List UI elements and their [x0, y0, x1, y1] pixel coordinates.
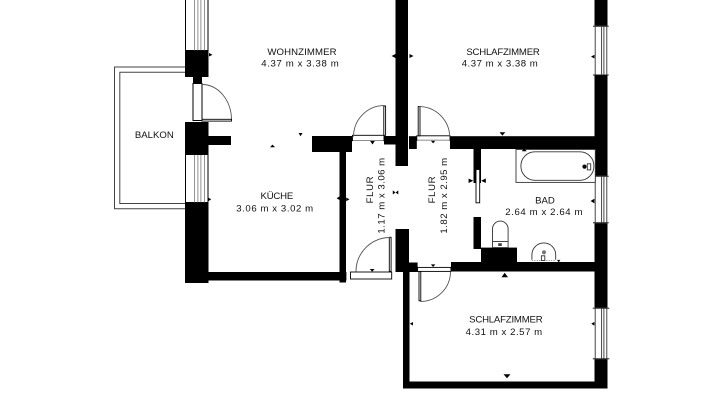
- svg-text:KÜCHE: KÜCHE: [261, 191, 294, 202]
- svg-text:BALKON: BALKON: [135, 130, 174, 141]
- svg-text:1.82 m x 2.95 m: 1.82 m x 2.95 m: [439, 157, 450, 233]
- svg-text:4.37 m x 3.38 m: 4.37 m x 3.38 m: [261, 58, 339, 69]
- svg-text:FLUR: FLUR: [365, 176, 376, 203]
- svg-text:BAD: BAD: [535, 195, 555, 206]
- svg-text:4.37 m x 3.38 m: 4.37 m x 3.38 m: [462, 58, 539, 69]
- svg-text:WOHNZIMMER: WOHNZIMMER: [267, 47, 336, 58]
- svg-text:SCHLAFZIMMER: SCHLAFZIMMER: [466, 47, 540, 58]
- svg-text:1.17 m x 3.06 m: 1.17 m x 3.06 m: [376, 157, 387, 233]
- svg-text:2.64 m x 2.64 m: 2.64 m x 2.64 m: [505, 207, 583, 218]
- svg-text:4.31 m x 2.57 m: 4.31 m x 2.57 m: [466, 327, 543, 338]
- svg-text:SCHLAFZIMMER: SCHLAFZIMMER: [469, 315, 543, 326]
- svg-text:3.06 m x 3.02 m: 3.06 m x 3.02 m: [236, 203, 314, 214]
- svg-text:FLUR: FLUR: [427, 176, 438, 203]
